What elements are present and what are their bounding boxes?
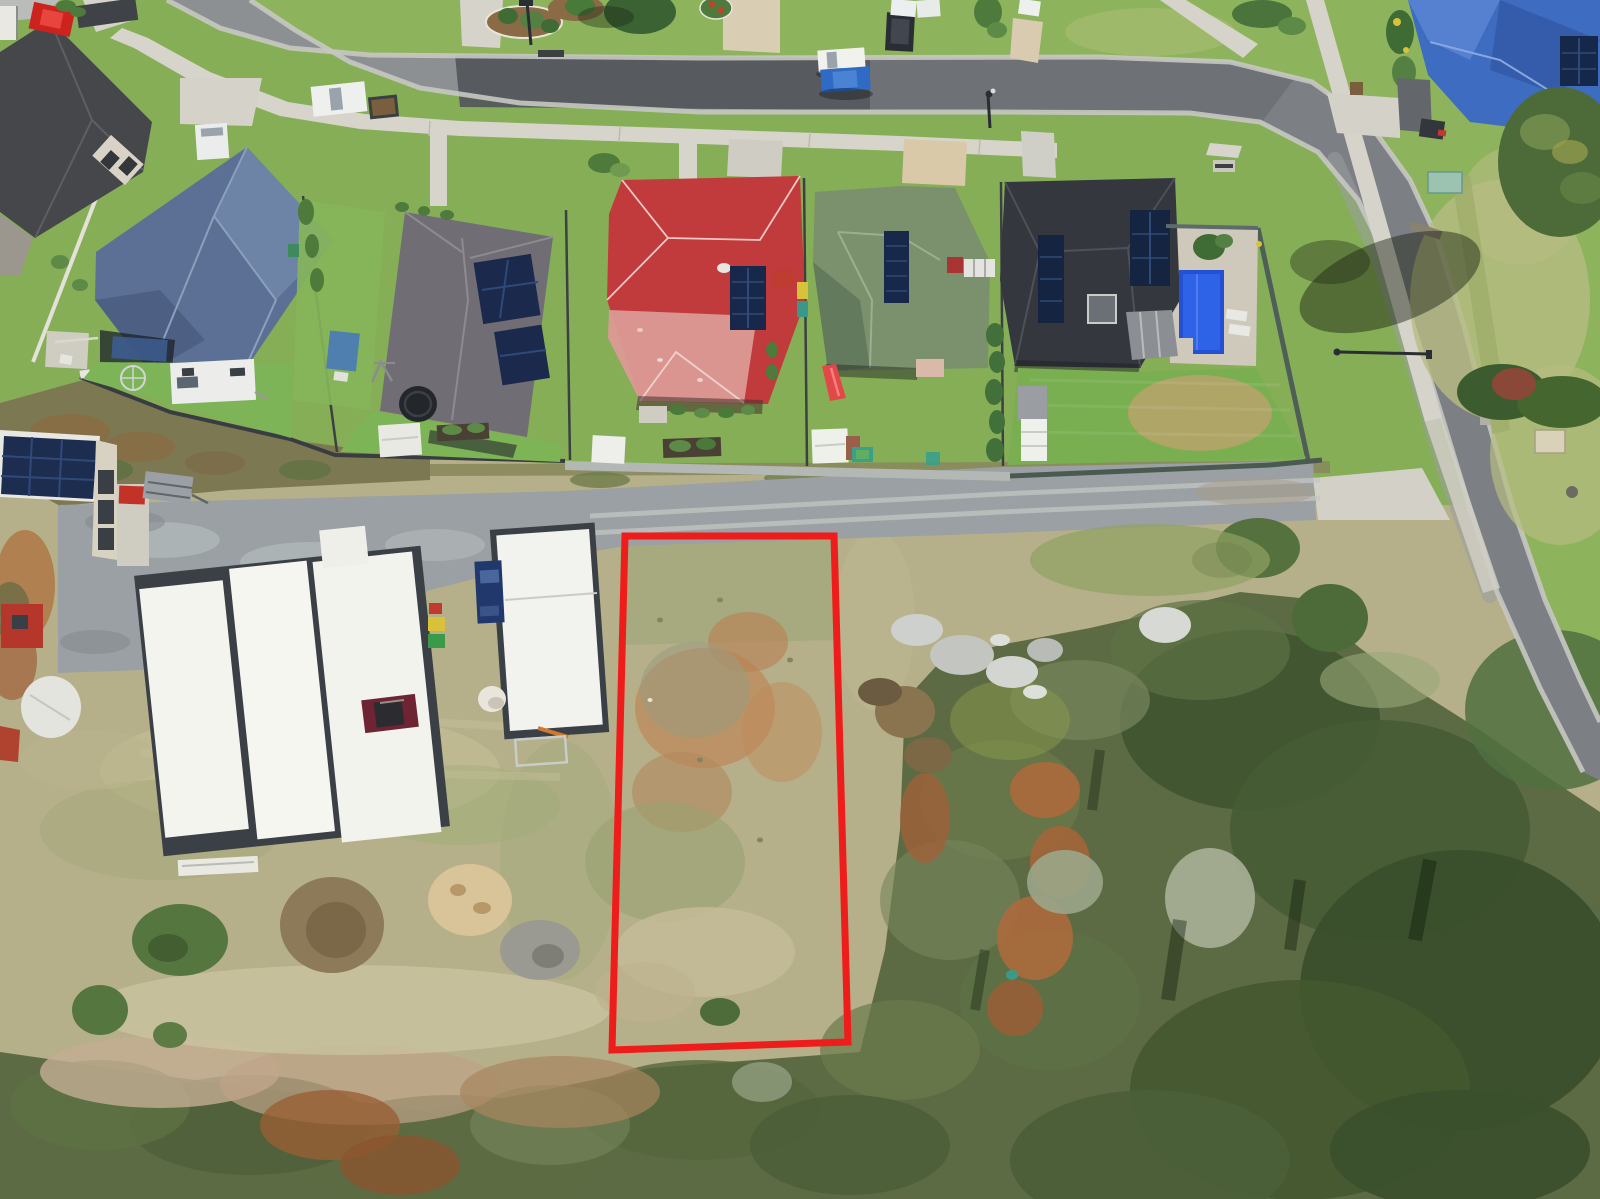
flower-bed-north (700, 0, 732, 19)
footpath-joint (979, 139, 980, 154)
house-e-windows (964, 259, 995, 277)
mulch-bed-shrub (498, 8, 518, 24)
silver-tree (1027, 850, 1103, 914)
shed-solar-door (98, 500, 114, 524)
verge-tex (185, 451, 245, 475)
house-g-vehicle-stripe (1438, 129, 1447, 136)
streetlight-pole-mid (988, 95, 990, 128)
driveway-house-d (727, 139, 783, 178)
flower-red (709, 1, 715, 7)
house-f-lawn-drypatch (1128, 375, 1272, 451)
dirt-patch-core (306, 902, 366, 958)
hedge-bc (298, 199, 314, 225)
streetlight-head-north (519, 0, 533, 6)
white-van-north2 (916, 0, 940, 18)
house-c-front-shrub (395, 202, 409, 212)
garden-beds-c-green (467, 423, 485, 433)
white-building-corner (0, 6, 17, 40)
woodchip-pile (428, 864, 512, 936)
house-d-speckle (697, 378, 703, 382)
footpath-joint (809, 132, 810, 147)
scrub-orange (1010, 762, 1080, 818)
aqua-box (926, 452, 940, 465)
white-van-north (890, 0, 916, 17)
white-car-windshield (826, 52, 837, 69)
shed-solar-panels (1, 436, 97, 499)
crate-red (429, 603, 442, 614)
house-e-solar-array (884, 231, 909, 303)
paddock-bush-dark (148, 934, 188, 962)
scrub-orange (987, 980, 1043, 1036)
teal-item (1006, 970, 1018, 980)
streetlight-shadow-east (1340, 352, 1428, 354)
hedge-se-red (1492, 368, 1536, 400)
rock-mound-dark (532, 944, 564, 968)
shed-solar-door (98, 470, 114, 494)
lot-grey-patch (640, 642, 750, 738)
navy-car-rear (480, 605, 499, 616)
bin-teal-de (797, 301, 808, 317)
maroon-car-windows (374, 699, 405, 727)
rubble-dark-mound (904, 737, 952, 773)
verge-grass-sw (1030, 524, 1270, 596)
hedge-bc (305, 234, 319, 258)
house-a-garden (51, 255, 69, 269)
house-d-garden (670, 405, 686, 415)
gravel-dirt-tinge (1195, 478, 1315, 506)
footpath-joint (429, 121, 430, 136)
mulch-bed-shrub (520, 11, 544, 29)
red-item-edge (0, 726, 20, 762)
garden-shed-f-upper (1018, 386, 1047, 420)
driveway-house-e (902, 139, 967, 186)
streetlight-lamp-dot (991, 89, 996, 94)
caravan-solar (177, 376, 199, 388)
big-shrub-shadow (578, 6, 634, 28)
blue-car-shadow (819, 88, 873, 100)
dome-tank-shade (488, 697, 504, 709)
hedge-ef (985, 379, 1003, 405)
woodchip-fleck (473, 902, 491, 914)
rubble-pile (1139, 607, 1191, 643)
garden-beds-d-green (669, 440, 691, 452)
hedge-bc (310, 268, 324, 292)
white-car-north (1018, 0, 1041, 16)
streetlight-pole-east (1426, 350, 1432, 359)
paddock-bush (153, 1022, 187, 1048)
parked-ute-windshield (329, 87, 343, 110)
tree-east-yellow (1552, 140, 1588, 164)
brown-box-east (1350, 82, 1363, 95)
lot-bush (700, 998, 740, 1026)
house-d-shrub-east (766, 364, 778, 380)
lot-speck (657, 618, 663, 623)
drain-pit-slot (1215, 164, 1233, 168)
blue-tarp-clutter (326, 331, 360, 372)
house-e-patio (916, 359, 944, 377)
aerial-photo (0, 0, 1600, 1199)
rubble-dark-mound (858, 678, 902, 706)
streetlight-head-east (1334, 349, 1341, 356)
path-house-c (430, 128, 447, 206)
shed-solar-door (98, 528, 114, 550)
hedge-ef (986, 323, 1004, 347)
garden-north-right (987, 22, 1007, 38)
house-d-speckle (637, 328, 643, 332)
silver-tree (732, 1062, 792, 1102)
hedge-ef (986, 438, 1004, 462)
pool-garden-bush (1215, 234, 1233, 248)
front-garden-d (610, 163, 630, 177)
house-d-garden (741, 405, 755, 415)
house-d-shrub-east (766, 342, 778, 358)
lot-speck (697, 758, 703, 763)
rubble-fleck (1023, 685, 1047, 699)
house-d-porch-pad (639, 406, 667, 423)
garden-beds-c-green (442, 425, 462, 435)
footpath-joint (619, 127, 620, 142)
paddock-bush (72, 985, 128, 1035)
house-c-front-shrub (440, 210, 454, 220)
hedge-ef (989, 410, 1005, 434)
hedge-ef (989, 351, 1005, 373)
cream-shed-east (1535, 430, 1565, 453)
mulch-bed-shrub (541, 19, 559, 33)
rubble-pile (986, 656, 1038, 688)
gravel-tex-dark (60, 630, 130, 654)
red-vehicle-yard (119, 486, 146, 505)
house-f-alfresco (1126, 310, 1178, 360)
rubble-pile (930, 635, 994, 675)
house-g-vehicle (1419, 118, 1445, 139)
house-d-garden (694, 408, 710, 418)
well-pit-east (1566, 486, 1578, 498)
garden-beds-d-green (696, 438, 716, 450)
tree-shadow-on-road (1290, 240, 1370, 284)
lot-olive (585, 802, 745, 922)
marker-dot-yellow (1256, 241, 1262, 247)
house-g-garden-flower (1393, 18, 1401, 26)
pool-wall-top (1166, 226, 1258, 228)
lot-speck (787, 658, 793, 663)
white-van-b-windshield (201, 127, 224, 137)
lot-speck (648, 698, 653, 702)
paddock-tex (20, 730, 160, 790)
red-mower-seat (12, 615, 28, 629)
verge-weed (570, 472, 630, 488)
house-c-front-shrub (418, 206, 430, 216)
ute-trailer-wood (371, 98, 396, 116)
verge-tree-sw (1292, 584, 1368, 652)
crate-yellow (428, 617, 445, 631)
verge-tex (279, 460, 331, 480)
navy-car-windshield (480, 569, 500, 583)
black-suv-roof (890, 19, 909, 45)
house-a-garden (72, 279, 88, 291)
lot-speck (757, 838, 763, 843)
woodchip-fleck (450, 884, 466, 896)
aqua-pond-water (856, 450, 869, 459)
shed-bay-top-ext (319, 526, 369, 569)
blue-car-roof (832, 70, 857, 89)
red-cubby (772, 269, 793, 288)
house-d-vent (717, 263, 731, 273)
aerial-photo-canvas (0, 0, 1600, 1199)
scrub-orange (900, 773, 950, 863)
garden-ne (1278, 17, 1306, 35)
pool-step-notch (1179, 338, 1193, 354)
driveway-apron-b (180, 78, 262, 126)
shed-long (496, 529, 602, 731)
driveway-north-2 (1010, 18, 1043, 63)
white-box-trailer-d (591, 435, 625, 464)
scrub-dead-band (460, 1056, 660, 1128)
rubble-pile (1027, 638, 1063, 662)
lot-speck (717, 598, 723, 603)
caravan-window (182, 368, 194, 377)
crate-green (428, 634, 445, 648)
scrub-orange (340, 1135, 460, 1195)
scrub-tex (750, 1095, 950, 1195)
rubble-pile (891, 614, 943, 646)
teal-utility-box (1428, 172, 1462, 193)
bin-yellow-de (797, 282, 808, 299)
garden-shed-f-lower (1021, 419, 1047, 461)
footpath-apron-north (1327, 93, 1400, 138)
house-g-garden-flower (1403, 47, 1409, 53)
house-g-garden (1386, 10, 1414, 54)
solar-hot-water (1088, 295, 1116, 323)
rubble-fleck (990, 634, 1010, 646)
kerb-inlet-grate (538, 50, 564, 57)
green-cover-box (288, 244, 299, 257)
verge-grass-sw (1320, 652, 1440, 708)
driveway-house-f (1021, 131, 1056, 178)
caravan-window (230, 368, 245, 377)
hedge-topleft (70, 7, 86, 17)
house-e-garage-door (947, 257, 963, 273)
house-d-speckle (657, 358, 663, 362)
house-b-carport-car (111, 336, 167, 362)
scrub-olive (950, 680, 1070, 760)
house-d-garden (718, 408, 734, 418)
flower-red (718, 7, 724, 13)
lot-orange (742, 682, 822, 782)
